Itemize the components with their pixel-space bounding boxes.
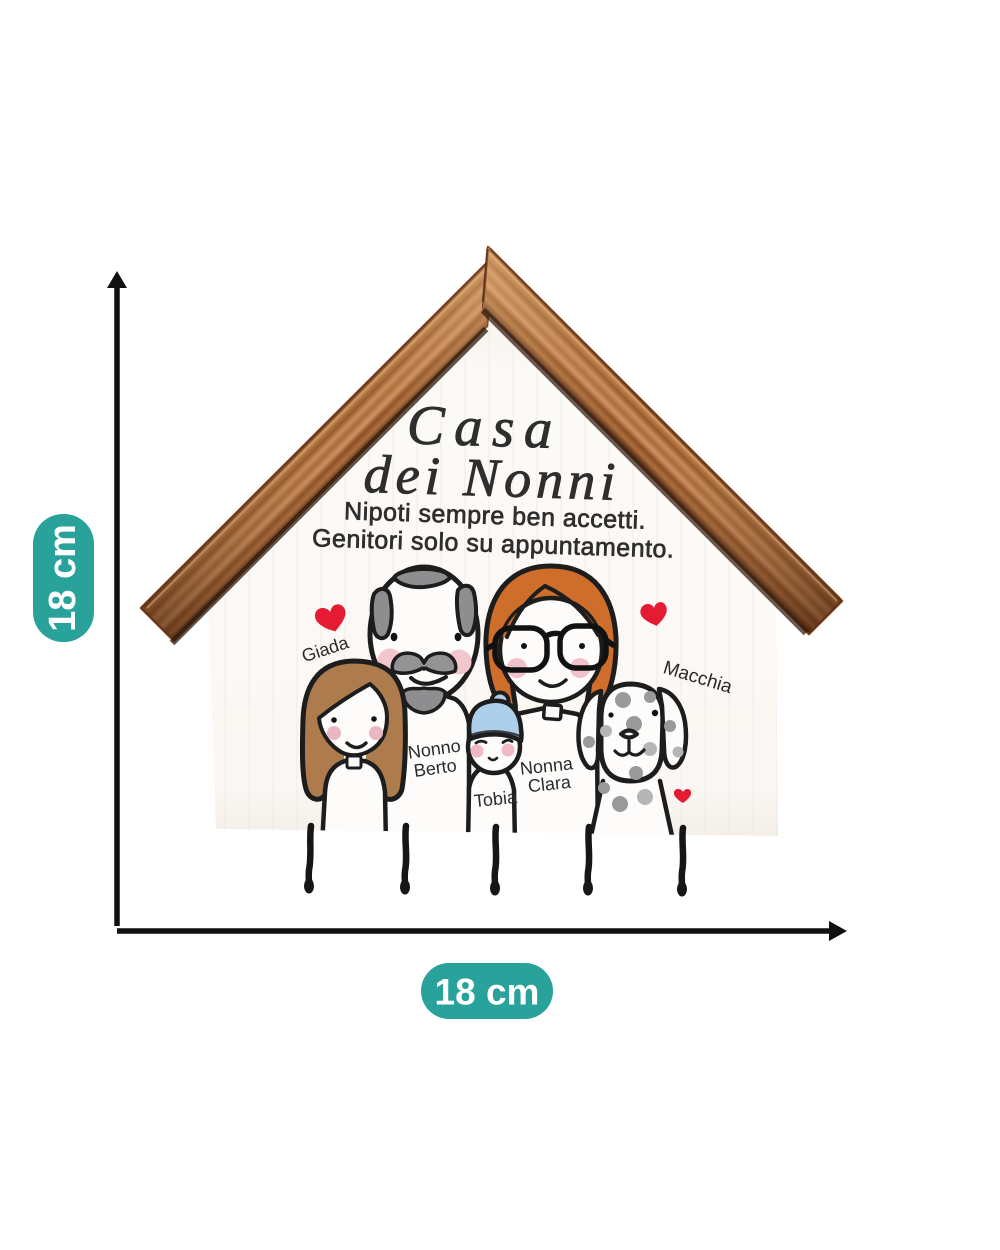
svg-text:18 cm: 18 cm [42,524,84,632]
svg-text:18 cm: 18 cm [435,972,540,1013]
